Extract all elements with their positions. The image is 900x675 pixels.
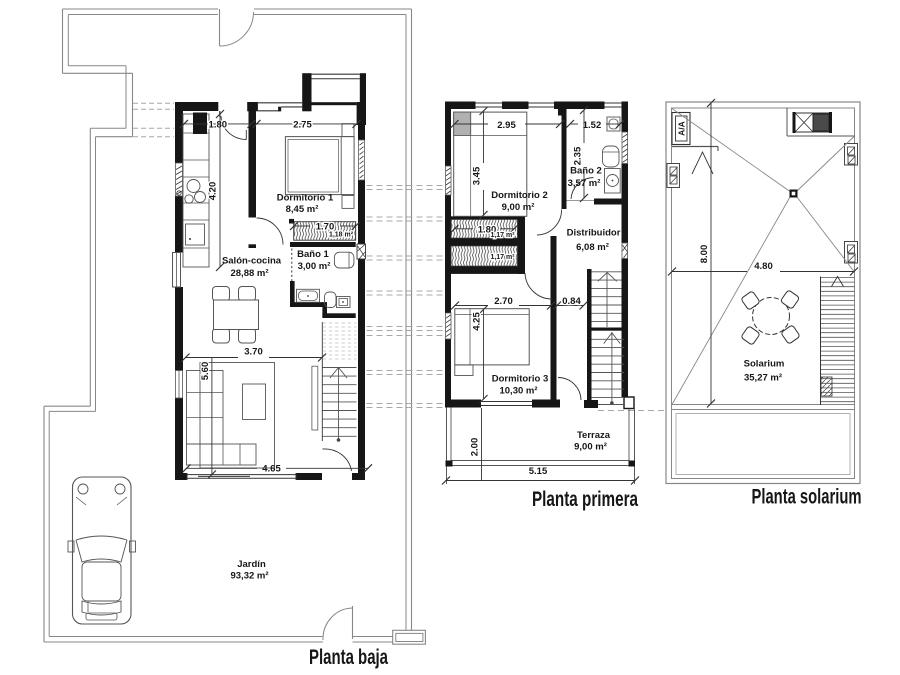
- svg-text:9,00 m²: 9,00 m²: [574, 442, 607, 453]
- svg-text:4.25: 4.25: [472, 312, 483, 331]
- svg-text:1.80: 1.80: [209, 120, 228, 131]
- svg-text:35,27 m²: 35,27 m²: [744, 373, 782, 384]
- svg-text:8.00: 8.00: [699, 245, 710, 264]
- svg-text:28,88 m²: 28,88 m²: [230, 268, 268, 279]
- svg-text:3,00 m²: 3,00 m²: [298, 261, 331, 272]
- svg-text:1,18 m²: 1,18 m²: [329, 232, 354, 239]
- svg-text:2.95: 2.95: [497, 120, 516, 131]
- svg-text:5.15: 5.15: [529, 466, 548, 477]
- svg-text:4.65: 4.65: [262, 464, 281, 475]
- svg-text:3.70: 3.70: [244, 347, 263, 358]
- svg-text:1.52: 1.52: [583, 120, 602, 131]
- svg-text:2.70: 2.70: [494, 296, 513, 307]
- svg-text:3.45: 3.45: [472, 166, 483, 185]
- svg-text:Planta primera: Planta primera: [532, 488, 638, 511]
- svg-text:2.75: 2.75: [293, 120, 312, 131]
- svg-text:6,08 m²: 6,08 m²: [576, 242, 609, 253]
- svg-text:3,57 m²: 3,57 m²: [568, 178, 601, 189]
- svg-text:9,00 m²: 9,00 m²: [502, 202, 535, 213]
- svg-text:93,32 m²: 93,32 m²: [230, 571, 268, 582]
- svg-text:Solarium: Solarium: [744, 359, 785, 370]
- svg-text:Dormitorio 3: Dormitorio 3: [492, 374, 548, 385]
- svg-text:Jardín: Jardín: [237, 559, 266, 570]
- svg-text:A/A: A/A: [677, 121, 687, 136]
- svg-text:10,30 m²: 10,30 m²: [499, 386, 537, 397]
- svg-text:Terraza: Terraza: [577, 430, 611, 441]
- svg-text:Baño 2: Baño 2: [570, 166, 602, 177]
- svg-text:Salón-cocina: Salón-cocina: [222, 256, 282, 267]
- svg-text:1,17 m²: 1,17 m²: [490, 254, 515, 261]
- svg-text:4.20: 4.20: [208, 182, 219, 201]
- svg-text:8,45 m²: 8,45 m²: [286, 204, 319, 215]
- svg-text:5.60: 5.60: [200, 362, 211, 381]
- svg-text:Dormitorio 2: Dormitorio 2: [491, 190, 547, 201]
- svg-text:0.84: 0.84: [562, 296, 581, 307]
- svg-text:Planta baja: Planta baja: [309, 646, 388, 669]
- svg-text:Baño 1: Baño 1: [297, 249, 329, 260]
- svg-text:Distribuidor: Distribuidor: [567, 228, 621, 239]
- svg-text:2.00: 2.00: [470, 438, 481, 457]
- svg-text:Dormitorio 1: Dormitorio 1: [277, 193, 334, 204]
- svg-text:Planta solarium: Planta solarium: [752, 486, 862, 509]
- svg-text:2.35: 2.35: [573, 146, 584, 165]
- svg-text:4.80: 4.80: [754, 261, 773, 272]
- svg-text:1,17 m²: 1,17 m²: [490, 232, 515, 239]
